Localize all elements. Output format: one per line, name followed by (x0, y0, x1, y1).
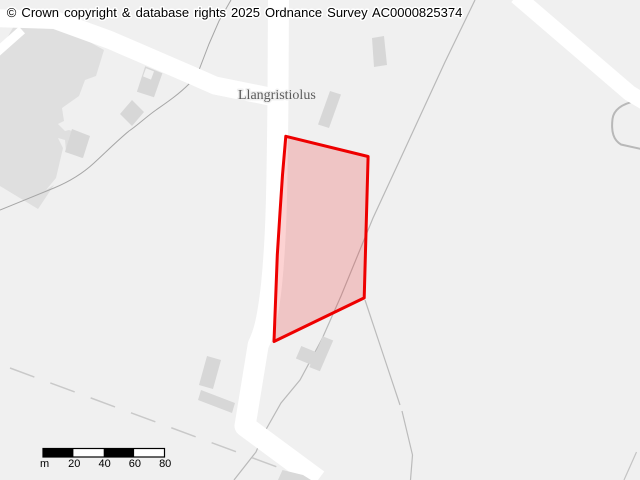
svg-text:Llangristiolus: Llangristiolus (238, 88, 316, 103)
svg-text:80: 80 (159, 458, 171, 470)
svg-text:m: m (40, 458, 49, 470)
svg-text:© Crown copyright & database r: © Crown copyright & database rights 2025… (7, 5, 463, 20)
svg-text:60: 60 (129, 458, 141, 470)
svg-text:20: 20 (68, 458, 80, 470)
svg-text:40: 40 (98, 458, 110, 470)
